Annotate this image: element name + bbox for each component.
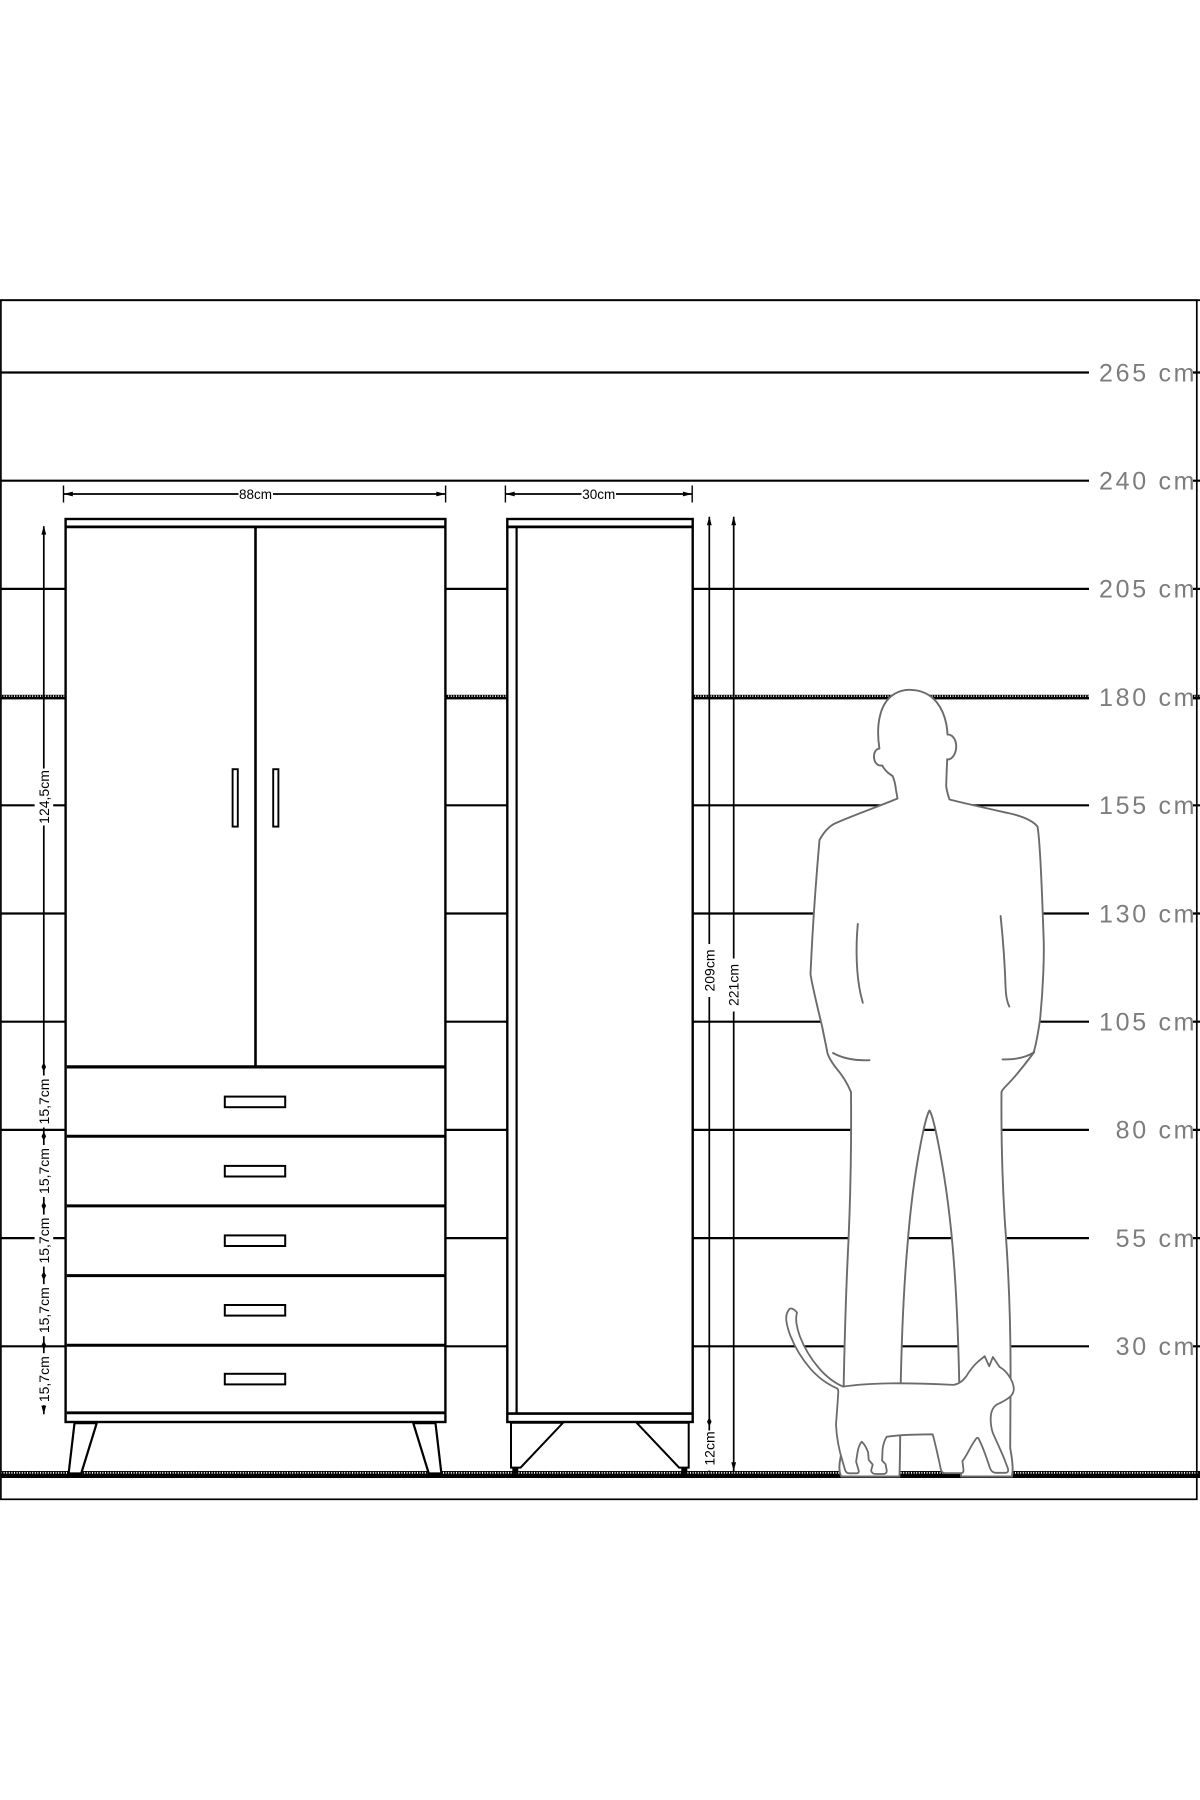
svg-text:80 cm: 80 cm <box>1116 1117 1198 1145</box>
svg-text:205 cm: 205 cm <box>1099 576 1197 604</box>
svg-text:124,5cm: 124,5cm <box>36 770 52 824</box>
svg-text:15,7cm: 15,7cm <box>36 1148 52 1194</box>
svg-text:221cm: 221cm <box>726 964 742 1006</box>
svg-text:105 cm: 105 cm <box>1099 1009 1197 1037</box>
svg-text:209cm: 209cm <box>701 949 717 991</box>
svg-text:180 cm: 180 cm <box>1099 684 1197 712</box>
svg-text:265 cm: 265 cm <box>1099 359 1197 387</box>
svg-text:240 cm: 240 cm <box>1099 468 1197 496</box>
svg-text:15,7cm: 15,7cm <box>36 1287 52 1333</box>
svg-text:88cm: 88cm <box>239 487 272 502</box>
svg-text:55 cm: 55 cm <box>1116 1225 1198 1253</box>
svg-text:30cm: 30cm <box>582 487 615 502</box>
svg-text:130 cm: 130 cm <box>1099 900 1197 928</box>
svg-text:15,7cm: 15,7cm <box>36 1079 52 1125</box>
svg-text:12cm: 12cm <box>701 1431 717 1465</box>
svg-text:15,7cm: 15,7cm <box>36 1356 52 1402</box>
svg-text:155 cm: 155 cm <box>1099 792 1197 820</box>
svg-text:15,7cm: 15,7cm <box>36 1218 52 1264</box>
svg-text:30 cm: 30 cm <box>1116 1333 1198 1361</box>
